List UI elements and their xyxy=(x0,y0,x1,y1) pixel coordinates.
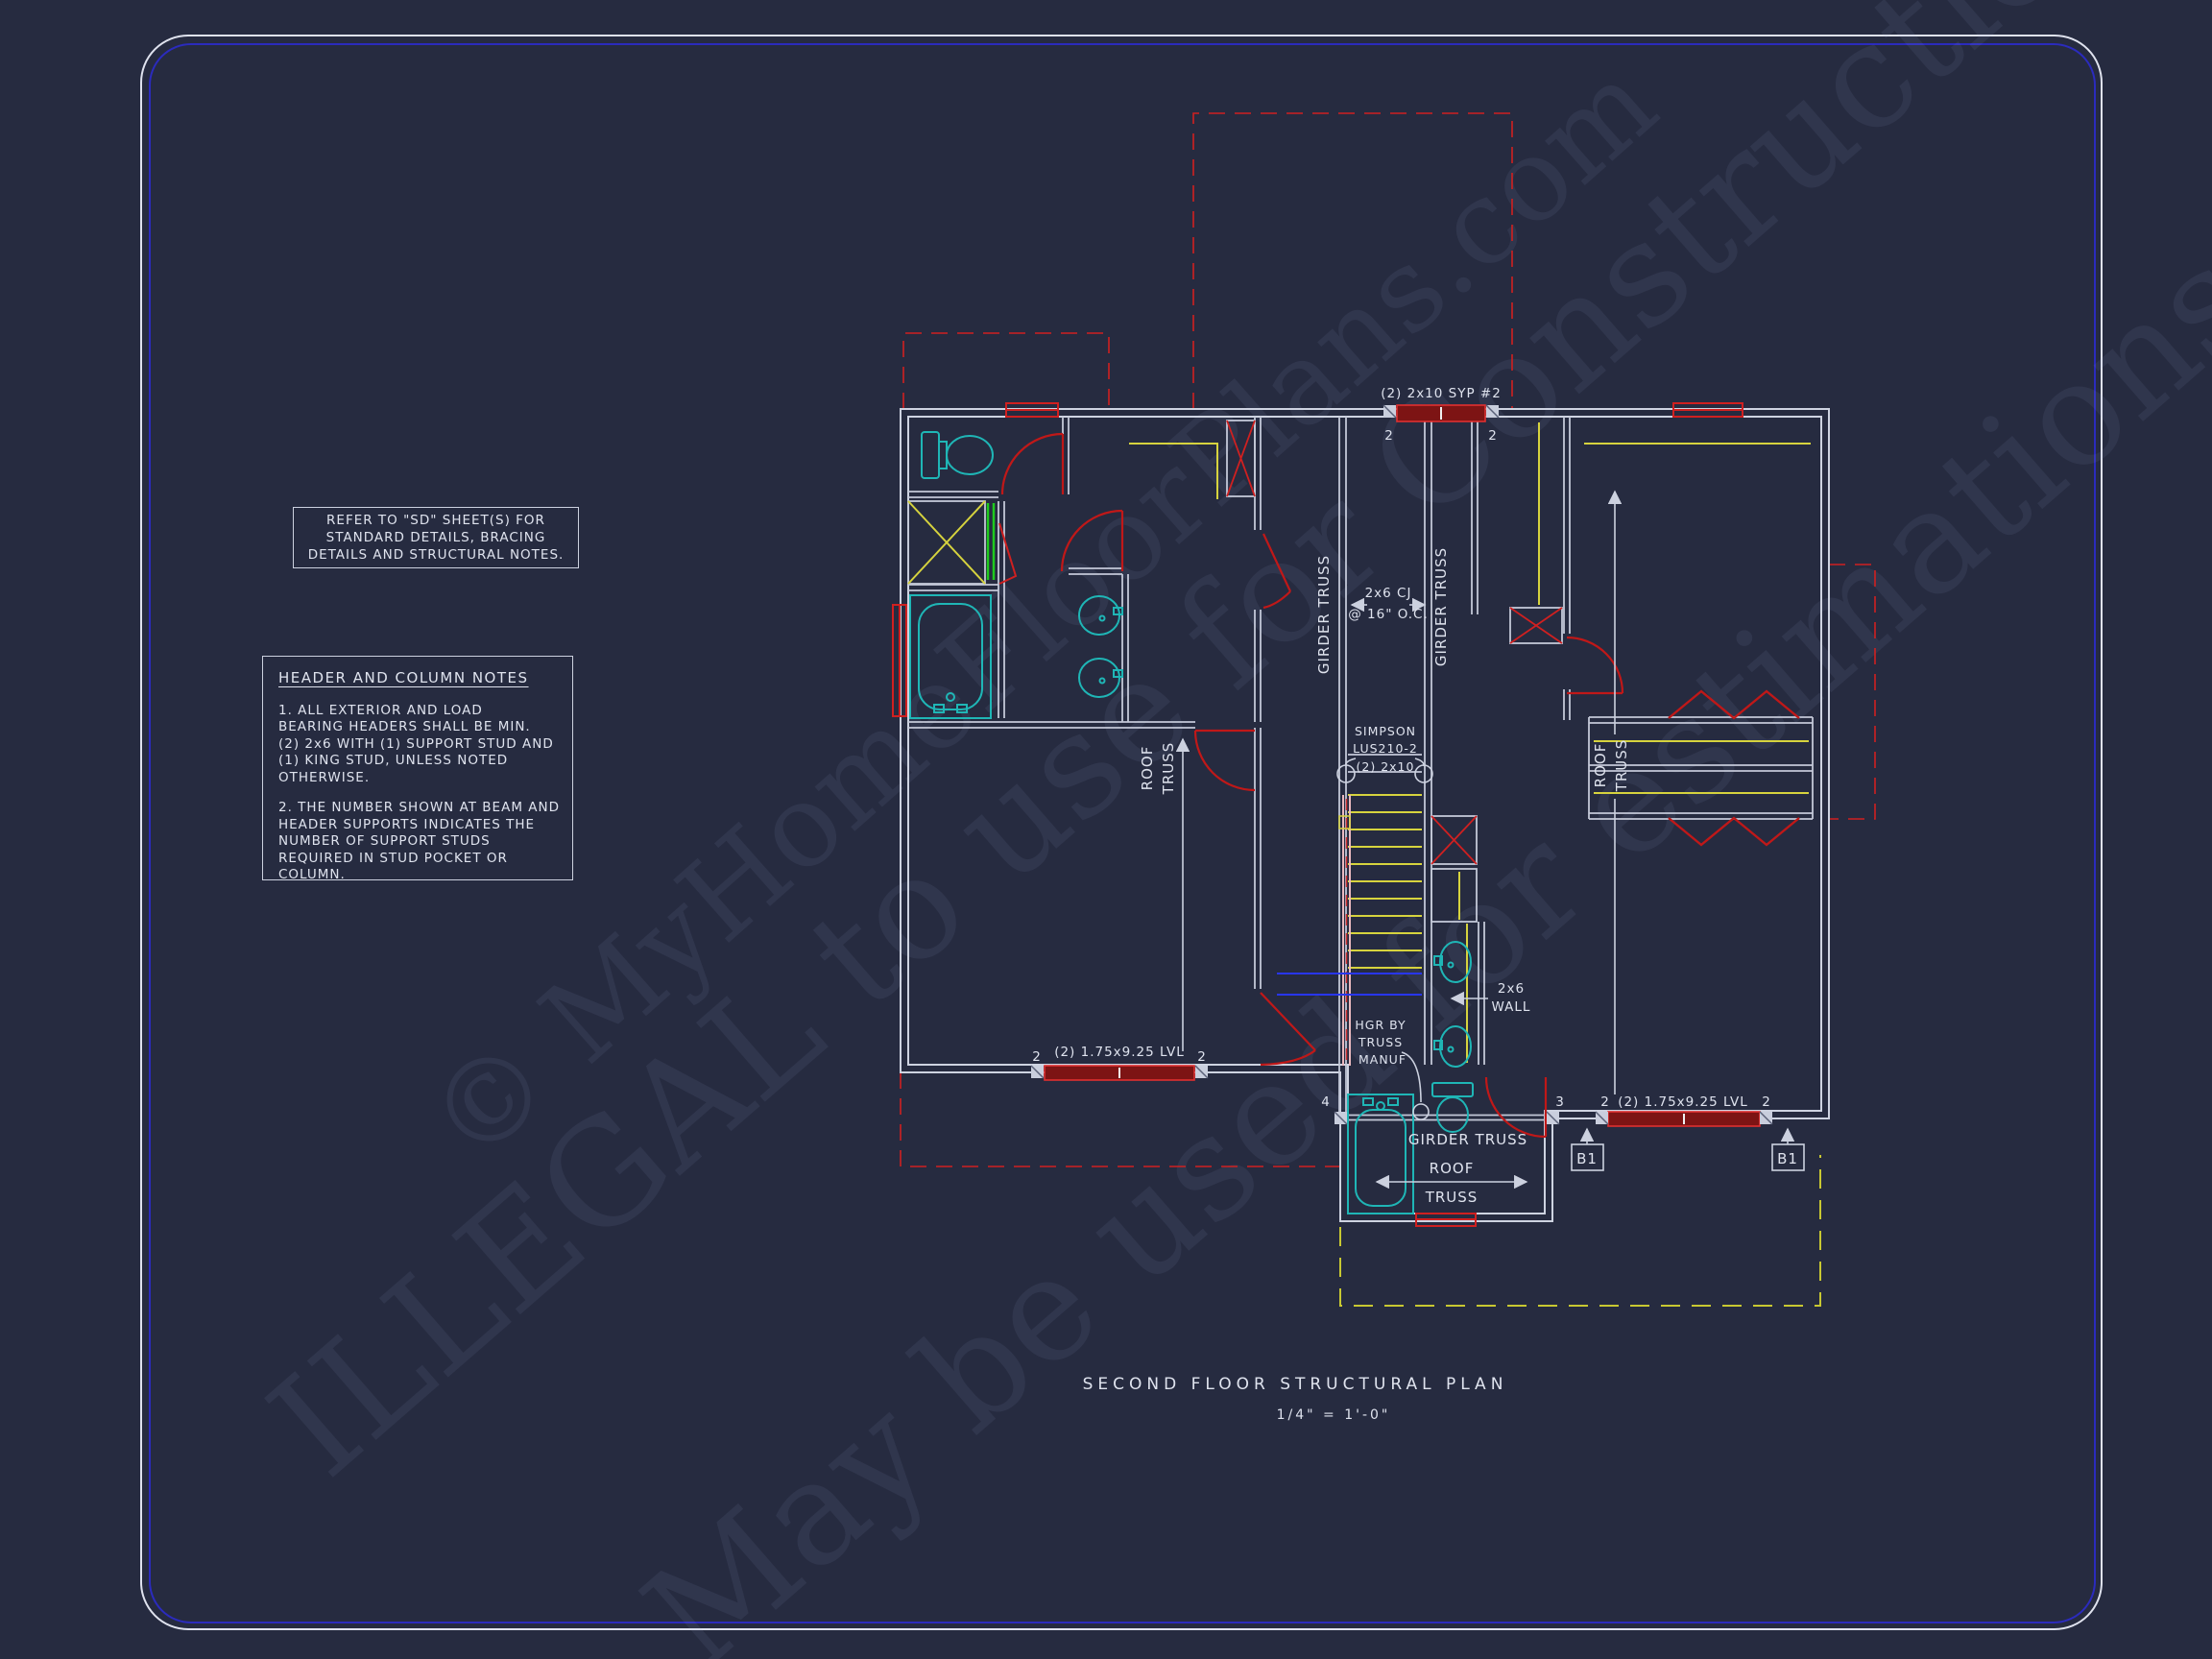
roof-outline-dashed xyxy=(901,113,1875,1166)
drawing-sheet: © MyHomeFloorPlans.com ILLEGAL to use fo… xyxy=(0,0,2212,1659)
roof-truss-label: TRUSS xyxy=(1613,739,1630,793)
title-block: SECOND FLOOR STRUCTURAL PLAN 1/4" = 1'-0… xyxy=(1007,1375,1583,1423)
header-note-2: 2. THE NUMBER SHOWN AT BEAM AND HEADER S… xyxy=(278,800,572,884)
beam-mark-b1: B1 xyxy=(1772,1144,1804,1170)
hanger-note-label: TRUSS xyxy=(1358,1035,1403,1049)
roof-truss-label: TRUSS xyxy=(1425,1189,1479,1206)
stud-pocket-symbol xyxy=(1760,1112,1772,1124)
toilet-icon xyxy=(1432,1083,1473,1132)
refer-note-box: REFER TO "SD" SHEET(S) FOR STANDARD DETA… xyxy=(293,507,579,568)
svg-text:B1: B1 xyxy=(1777,1150,1798,1167)
lvl-label: (2) 1.75x9.25 LVL xyxy=(1618,1094,1748,1110)
stud-pocket-symbol xyxy=(1383,405,1396,418)
simpson-hanger-label: LUS210-2 xyxy=(1353,741,1418,756)
lvl-label: (2) 1.75x9.25 LVL xyxy=(1054,1045,1185,1060)
wall-2x6-label: 2x6 xyxy=(1498,981,1525,997)
tub-icon xyxy=(1348,1094,1413,1214)
stud-pocket-symbol xyxy=(1195,1066,1208,1078)
svg-text:B1: B1 xyxy=(1576,1150,1598,1167)
roof-truss-label: TRUSS xyxy=(1160,742,1177,796)
support-count: 2 xyxy=(1032,1049,1042,1065)
stud-pocket-symbol xyxy=(1334,1112,1347,1124)
lvl-beam-left xyxy=(1031,1066,1208,1080)
girder-truss-label: GIRDER TRUSS xyxy=(1408,1131,1527,1148)
stud-pocket-symbol xyxy=(1031,1066,1044,1078)
sink-icon xyxy=(1079,596,1122,697)
beam-mark-b1: B1 xyxy=(1572,1144,1603,1170)
plan-title: SECOND FLOOR STRUCTURAL PLAN xyxy=(1007,1375,1583,1394)
header-notes-title: HEADER AND COLUMN NOTES xyxy=(278,670,572,687)
roof-truss-label: ROOF xyxy=(1592,743,1609,788)
refer-note-line: STANDARD DETAILS, BRACING xyxy=(294,529,578,546)
refer-note-line: DETAILS AND STRUCTURAL NOTES. xyxy=(294,546,578,564)
bifold-doors xyxy=(1669,691,1799,845)
support-count: 4 xyxy=(1321,1094,1331,1110)
support-count: 2 xyxy=(1488,428,1498,444)
sink-icon xyxy=(1434,942,1471,1067)
hanger-note-label: MANUF xyxy=(1358,1052,1407,1067)
support-count: 2 xyxy=(1762,1094,1771,1110)
refer-note-line: REFER TO "SD" SHEET(S) FOR xyxy=(294,512,578,529)
support-count: 3 xyxy=(1555,1094,1565,1110)
stud-pocket-symbol xyxy=(1486,405,1499,418)
header-column-notes-box: HEADER AND COLUMN NOTES 1. ALL EXTERIOR … xyxy=(262,656,573,880)
support-count: 2 xyxy=(1384,428,1394,444)
support-count: 2 xyxy=(1197,1049,1207,1065)
roof-truss-label: ROOF xyxy=(1430,1160,1475,1177)
shower-door-green xyxy=(988,503,994,580)
syp-header-beam xyxy=(1383,405,1499,421)
stud-pocket-symbol xyxy=(1596,1112,1608,1124)
hanger-note-label: HGR BY xyxy=(1355,1018,1406,1032)
plan-scale: 1/4" = 1'-0" xyxy=(1007,1407,1583,1423)
simpson-hanger-label: (2) 2x10 xyxy=(1357,759,1415,774)
shower-icon xyxy=(908,501,1016,584)
roof-truss-label: ROOF xyxy=(1139,746,1156,791)
stud-pocket-symbol xyxy=(1547,1112,1559,1124)
ceiling-joist-label: 2x6 CJ xyxy=(1365,586,1412,601)
girder-truss-label: GIRDER TRUSS xyxy=(1315,555,1333,674)
header-note-1: 1. ALL EXTERIOR AND LOAD BEARING HEADERS… xyxy=(278,703,572,787)
tub-icon xyxy=(910,595,991,718)
door-swings xyxy=(1002,434,1623,1137)
toilet-icon xyxy=(922,432,993,478)
girder-truss-label: GIRDER TRUSS xyxy=(1432,547,1450,666)
simpson-hanger-label: SIMPSON xyxy=(1355,724,1416,738)
wall-2x6-label: WALL xyxy=(1492,999,1531,1015)
syp-header-label: (2) 2x10 SYP #2 xyxy=(1381,386,1502,401)
support-count: 2 xyxy=(1600,1094,1610,1110)
ceiling-joist-label: @ 16" O.C. xyxy=(1348,607,1429,622)
